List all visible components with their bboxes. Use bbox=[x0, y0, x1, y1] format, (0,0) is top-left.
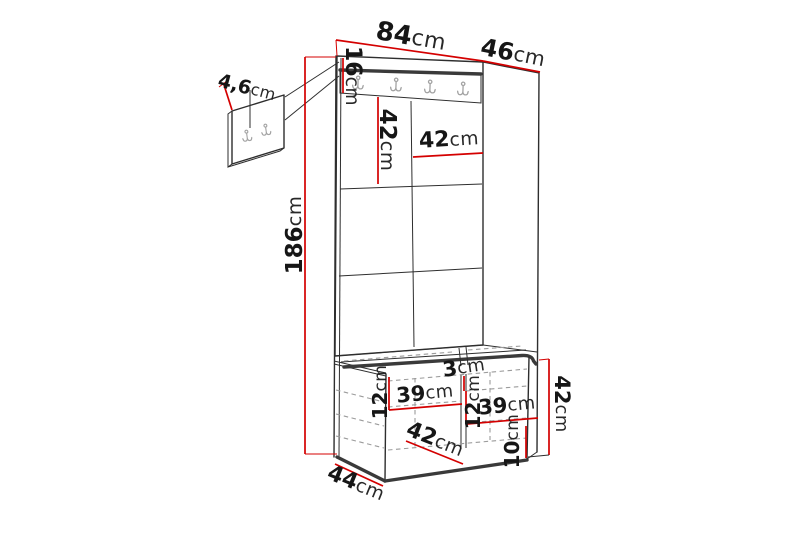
coat-hook-icon bbox=[425, 80, 436, 93]
dim-tick-84-left bbox=[336, 40, 337, 56]
dim-label-rail-height: 16cm bbox=[340, 46, 365, 106]
dim-label-total-height: 186cm bbox=[282, 196, 308, 275]
coat-hook-icon bbox=[261, 124, 271, 136]
dim-tick-42-right-top bbox=[539, 359, 549, 360]
diagram-canvas: 84cm 46cm 16cm 42cm 42cm 186cm 4,6cm 3cm… bbox=[0, 0, 800, 533]
tile-row-line-1 bbox=[340, 184, 482, 189]
panel-left-edge-inner bbox=[339, 58, 341, 457]
coat-hook-icon bbox=[458, 82, 469, 95]
detail-panel-front-face bbox=[232, 95, 284, 164]
dim-label-left-compartment-width: 39cm bbox=[395, 378, 454, 407]
dim-line-42-horizontal bbox=[413, 153, 483, 157]
tile-divider-vertical bbox=[411, 101, 414, 347]
dim-label-bench-inner-depth: 42cm bbox=[403, 417, 468, 462]
detail-panel-thickness-edges bbox=[228, 111, 284, 167]
coat-hook-icon bbox=[391, 78, 402, 91]
dim-label-tile-height: 42cm bbox=[375, 109, 401, 172]
dim-label-tile-width: 42cm bbox=[418, 125, 480, 154]
dim-label-bench-height: 42cm bbox=[550, 375, 574, 432]
hallway-unit-dimension-diagram: 84cm 46cm 16cm 42cm 42cm 186cm 4,6cm 3cm… bbox=[0, 0, 800, 533]
detail-callout-line-lower bbox=[285, 76, 339, 120]
detail-panel-hooks bbox=[242, 124, 271, 142]
rail-hooks bbox=[353, 76, 469, 95]
dim-label-left-compartment-height: 12cm bbox=[368, 365, 392, 420]
detail-callout-line-upper bbox=[285, 62, 339, 97]
tile-row-line-2 bbox=[339, 268, 482, 276]
coat-hook-icon bbox=[242, 130, 252, 142]
dim-label-detail-thickness: 4,6cm bbox=[216, 69, 279, 106]
dim-label-bottom-clearance: 10cm bbox=[500, 414, 524, 469]
